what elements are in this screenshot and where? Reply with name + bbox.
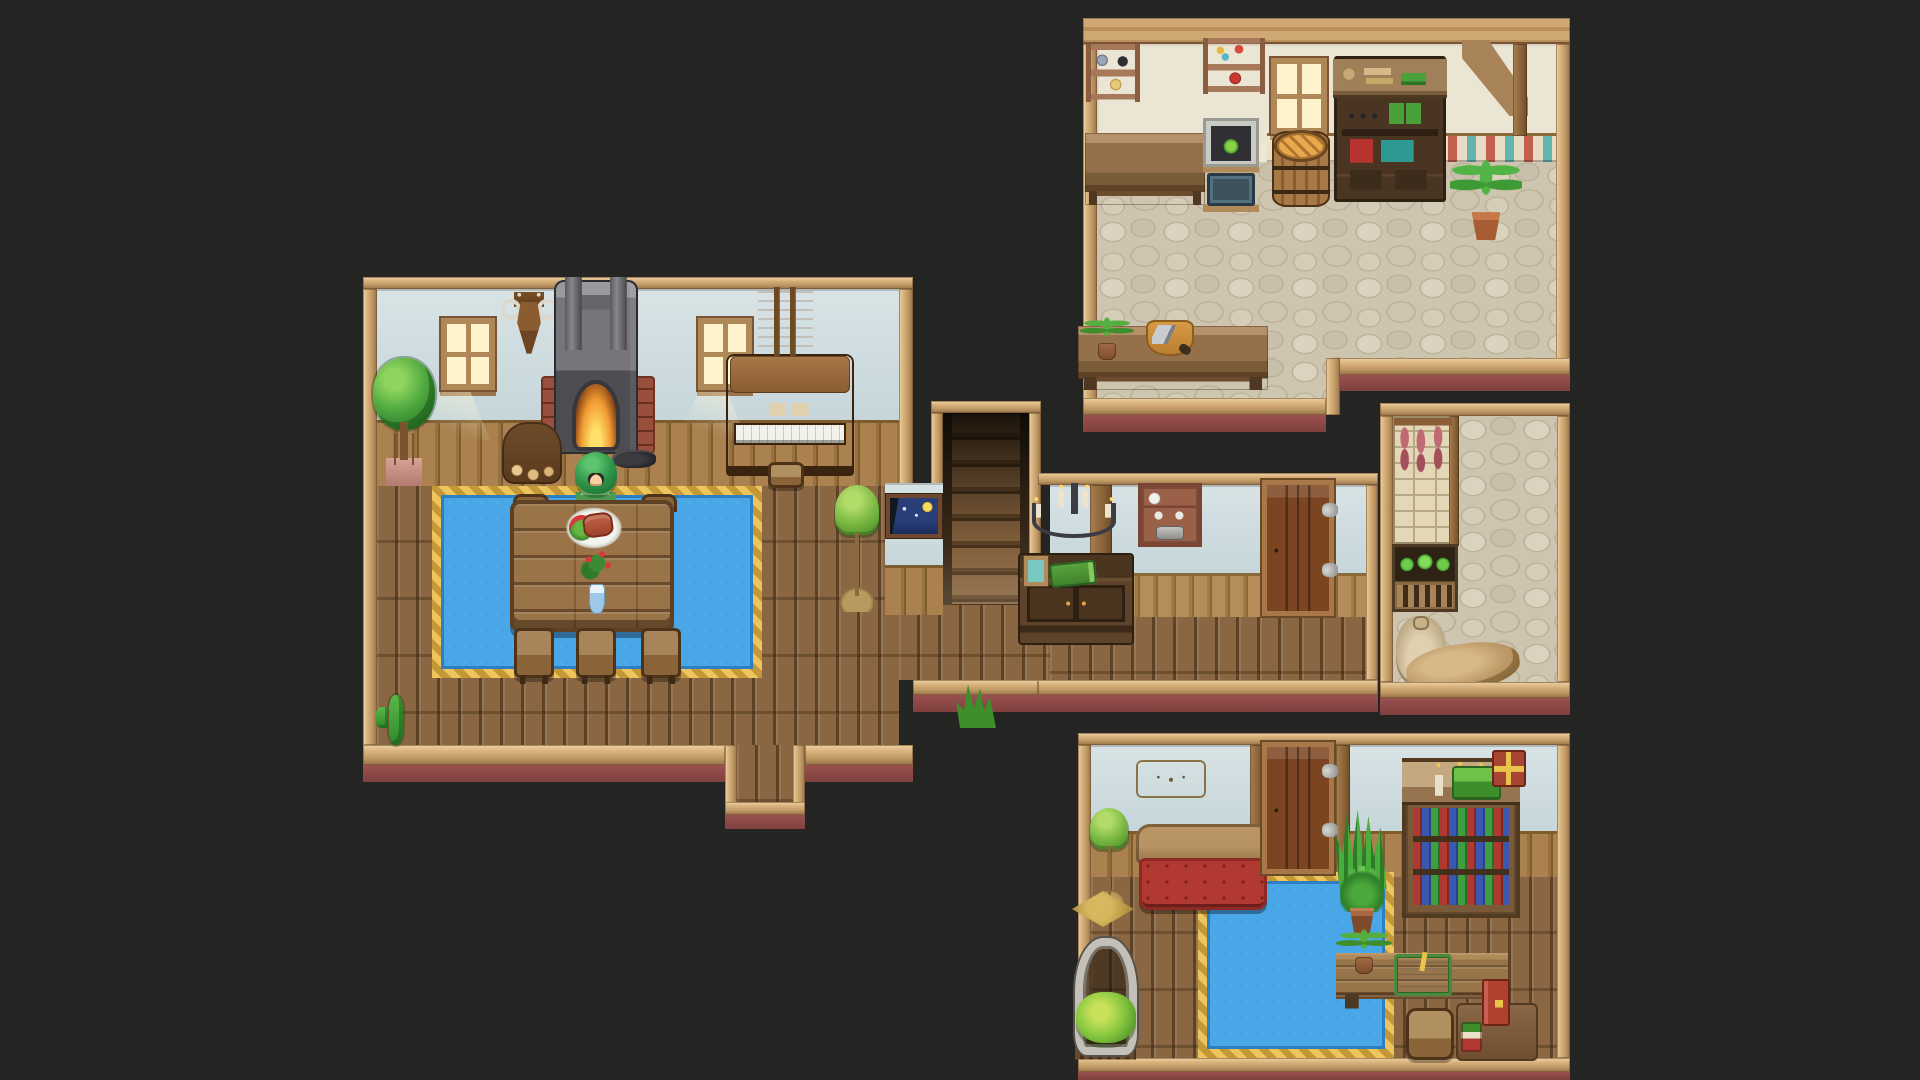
- candle-chandelier[interactable]: [1028, 483, 1120, 545]
- hall-baseboard: [1038, 695, 1378, 712]
- piano[interactable]: [726, 354, 854, 476]
- south-door-bottom-frame: [725, 802, 805, 815]
- kitchen-pot-shelf[interactable]: [1086, 44, 1140, 102]
- living-room-top-frame: [363, 277, 913, 289]
- living-room-baseboard-right: [805, 765, 913, 782]
- kitchen-counter[interactable]: [1085, 133, 1205, 205]
- kitchen-baseboard-left: [1083, 415, 1326, 432]
- pantry-top-frame: [1380, 403, 1570, 416]
- kitchen-right-frame: [1556, 44, 1570, 374]
- deer-head-trophy[interactable]: [502, 287, 556, 361]
- stairs-top-frame: [931, 401, 1041, 413]
- harvest-basket[interactable]: [1072, 938, 1140, 1060]
- wall-pillar-wainscot: [885, 565, 943, 615]
- vegetable-crate[interactable]: [1392, 544, 1458, 612]
- living-window-left: [441, 318, 495, 390]
- kitchen-jar-shelf[interactable]: [1203, 38, 1265, 94]
- study-floor-lamp[interactable]: [1086, 804, 1132, 910]
- dining-chair-2[interactable]: [576, 628, 616, 678]
- kitchen-bottom-frame-right: [1332, 358, 1570, 375]
- south-door-floor: [737, 745, 793, 802]
- desk-fern[interactable]: [1336, 926, 1392, 974]
- living-room-right-frame: [899, 289, 913, 485]
- study-stool[interactable]: [1406, 1008, 1454, 1060]
- book-stand[interactable]: [1456, 1003, 1538, 1061]
- firewood-pile[interactable]: [502, 422, 562, 484]
- kitchen-wall-post: [1513, 44, 1527, 136]
- kitchen-ceiling-beam: [1083, 18, 1570, 44]
- sideboard-green-book[interactable]: [1049, 560, 1097, 589]
- sideboard-photo-frame[interactable]: [1024, 556, 1048, 586]
- pantry-bottom-frame: [1380, 682, 1570, 698]
- kitchen-step-frame: [1326, 358, 1340, 415]
- iron-stove[interactable]: [554, 280, 638, 454]
- cutting-board-knife[interactable]: [1146, 320, 1194, 356]
- grain-barrel[interactable]: [1272, 131, 1330, 207]
- starry-night-painting[interactable]: [886, 494, 942, 538]
- study-baseboard: [1078, 1072, 1570, 1080]
- dining-chair-3[interactable]: [641, 628, 681, 678]
- arrow-rack[interactable]: [754, 287, 818, 357]
- kitchen-baseboard-right: [1332, 375, 1570, 391]
- kitchen-bottom-frame-left: [1083, 398, 1326, 415]
- study-door[interactable]: [1262, 742, 1334, 874]
- living-floor-lamp[interactable]: [831, 480, 883, 612]
- supply-cabinet[interactable]: [1334, 56, 1446, 202]
- dish-shelf[interactable]: [1138, 483, 1202, 547]
- kitchen-window: [1271, 58, 1327, 134]
- gift-boxes[interactable]: [1452, 750, 1526, 802]
- steak-plate[interactable]: [564, 506, 624, 550]
- living-room-baseboard-left: [363, 765, 725, 782]
- piano-bench[interactable]: [768, 462, 804, 488]
- dining-chair-1[interactable]: [514, 628, 554, 678]
- open-book[interactable]: [1394, 954, 1452, 996]
- hall-bottom-frame: [1038, 680, 1378, 695]
- wall-scroll[interactable]: [1136, 760, 1206, 798]
- living-room-bottom-frame-right: [805, 745, 913, 765]
- cooking-stove[interactable]: [1203, 118, 1259, 212]
- staircase[interactable]: [943, 413, 1029, 605]
- potted-tree[interactable]: [369, 358, 439, 486]
- pantry-right-frame: [1557, 416, 1570, 682]
- flower-vase[interactable]: [576, 548, 618, 614]
- red-couch[interactable]: [1136, 824, 1270, 914]
- prep-bench-fern[interactable]: [1080, 314, 1134, 360]
- cactus[interactable]: [372, 690, 420, 750]
- hanging-sausages[interactable]: [1394, 418, 1452, 480]
- hall-door[interactable]: [1262, 480, 1334, 616]
- study-right-frame: [1557, 745, 1570, 1058]
- game-viewport[interactable]: [0, 0, 1920, 1080]
- kitchen-palm-plant[interactable]: [1450, 158, 1522, 240]
- pantry-baseboard: [1380, 698, 1570, 715]
- south-door-baseboard: [725, 815, 805, 829]
- corridor-bottom-frame: [913, 680, 1038, 695]
- hall-right-frame: [1366, 485, 1378, 680]
